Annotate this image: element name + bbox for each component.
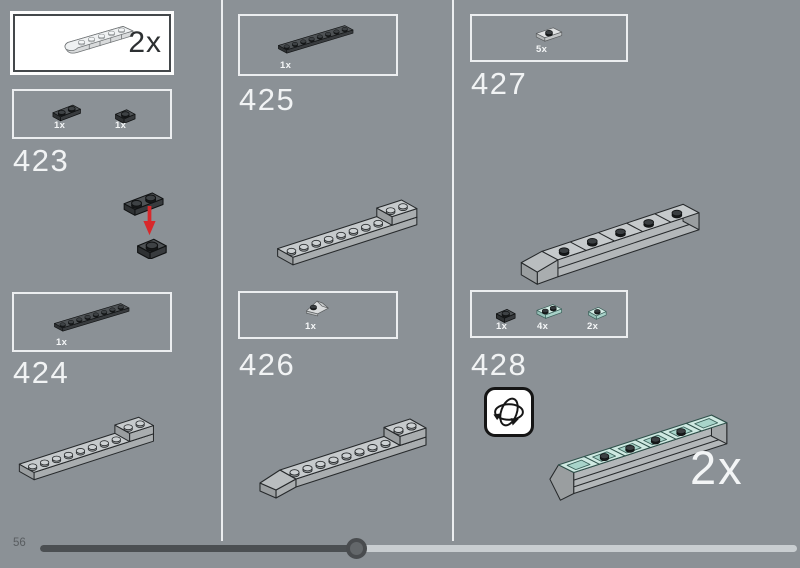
plate-1x2-teal-icon xyxy=(534,298,566,320)
plate-1x1-dark-icon xyxy=(492,300,517,323)
part-count: 4x xyxy=(537,321,548,332)
step-number-425: 425 xyxy=(239,82,295,118)
step-number-428: 428 xyxy=(471,347,527,383)
column-divider xyxy=(221,0,223,541)
step-multiplier-label: 2x xyxy=(690,440,744,495)
assembly-427-drawing xyxy=(510,178,715,293)
plate-1x8-dark-icon xyxy=(274,20,358,55)
slope-wedge-light-icon xyxy=(300,294,334,320)
part-count: 2x xyxy=(587,321,598,332)
part-count: 1x xyxy=(115,120,126,131)
part-count: 1x xyxy=(280,60,291,71)
step-number-427: 427 xyxy=(471,66,527,102)
part-count: 1x xyxy=(496,321,507,332)
instruction-page: 2x 1x 1x 423 xyxy=(0,0,800,568)
assembly-424-drawing xyxy=(12,398,170,492)
assembly-426-drawing xyxy=(252,386,450,504)
step-number-426: 426 xyxy=(239,347,295,383)
column-divider xyxy=(452,0,454,541)
page-number: 56 xyxy=(13,537,26,549)
step-number-424: 424 xyxy=(13,355,69,391)
part-count: 1x xyxy=(305,321,316,332)
plate-1x2-dark-icon xyxy=(50,98,84,123)
assembly-plate-1x1-dark xyxy=(131,225,169,259)
jumper-plate-light-icon xyxy=(532,20,566,43)
part-count: 5x xyxy=(536,44,547,55)
progress-handle[interactable] xyxy=(346,538,367,559)
progress-fill xyxy=(40,545,356,552)
part-count: 1x xyxy=(56,337,67,348)
progress-track[interactable] xyxy=(40,545,797,552)
part-count: 1x xyxy=(54,120,65,131)
assembly-425-drawing xyxy=(270,180,434,277)
parts-callout-423 xyxy=(12,89,172,139)
preview-count-label: 2x xyxy=(128,26,162,60)
plate-1x8-dark-icon xyxy=(50,298,134,333)
step-number-423: 423 xyxy=(13,143,69,179)
plate-1x1-teal-icon xyxy=(585,301,609,321)
submodel-preview-panel: 2x xyxy=(13,14,171,72)
